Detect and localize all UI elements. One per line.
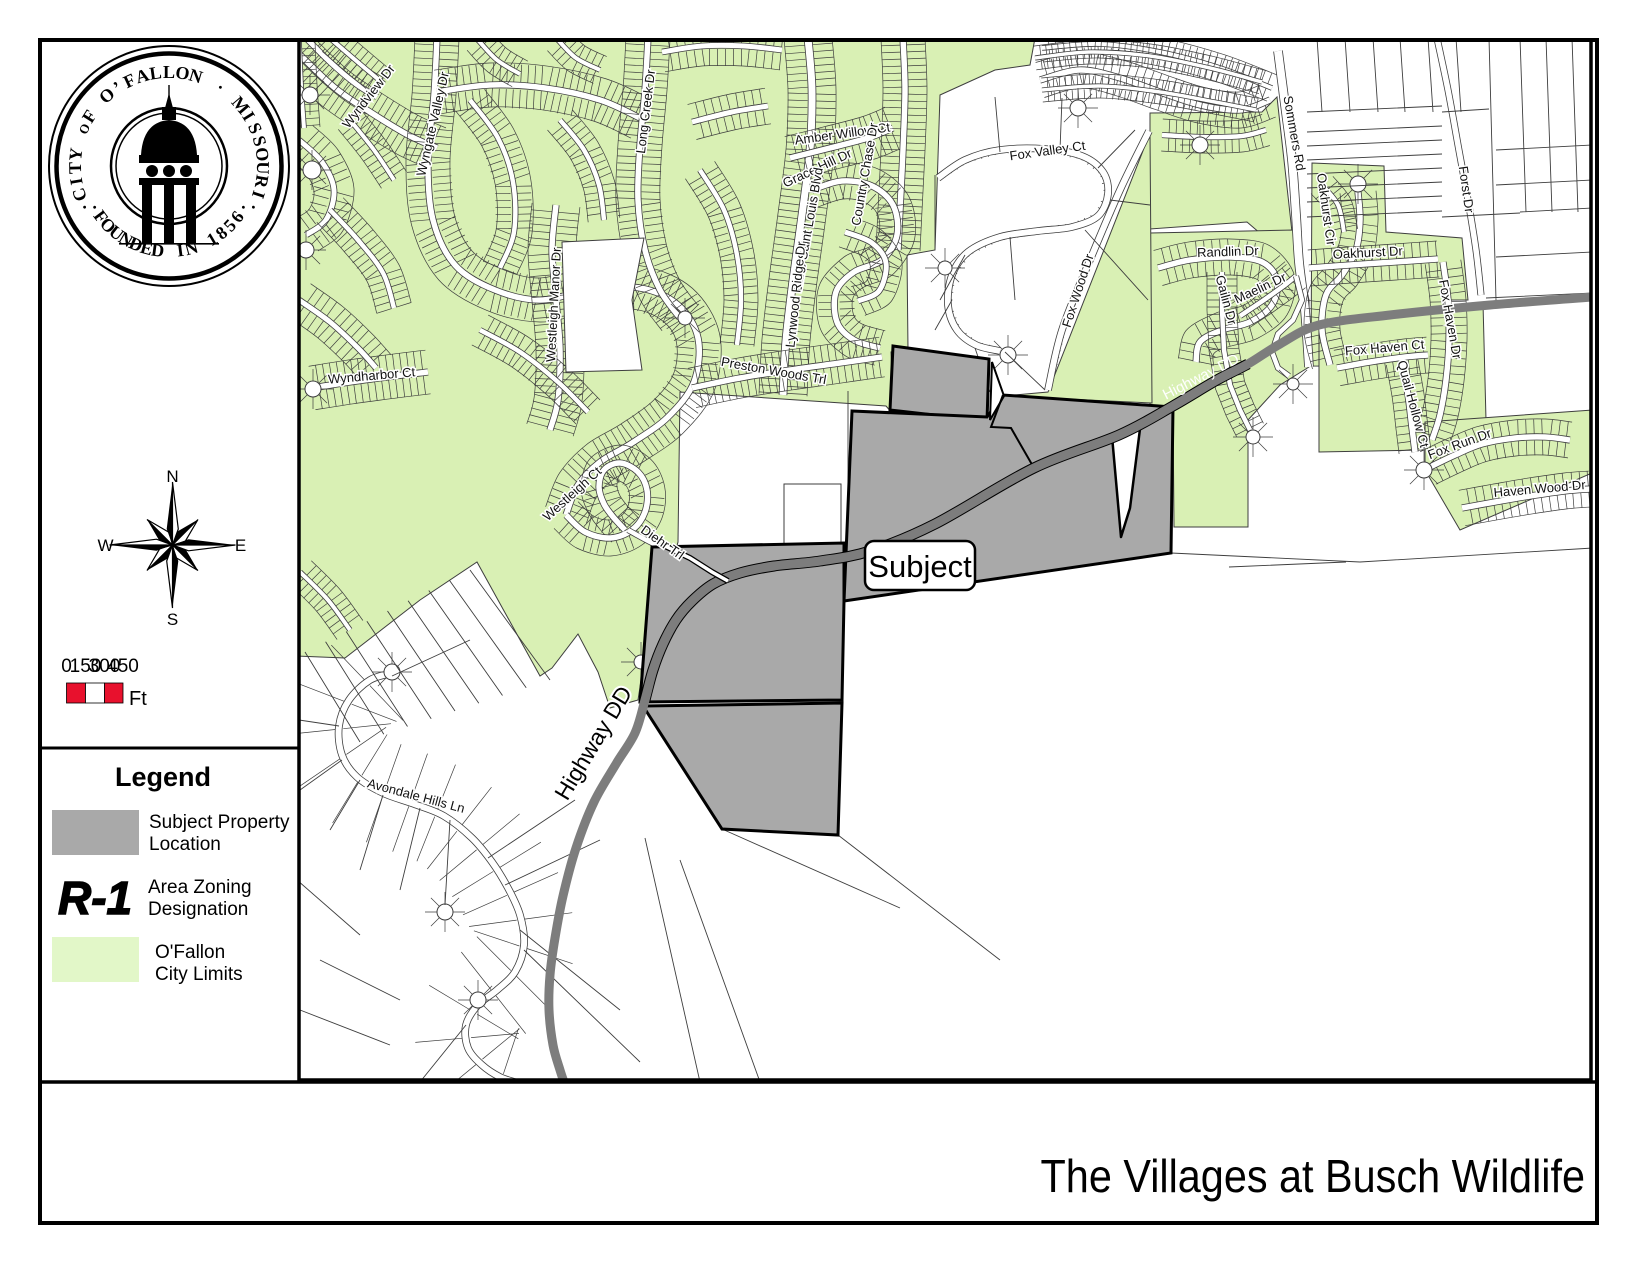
svg-text:Designation: Designation <box>148 899 248 920</box>
svg-text:N: N <box>166 467 178 486</box>
svg-text:R-1: R-1 <box>58 872 132 924</box>
svg-text:City Limits: City Limits <box>155 964 243 985</box>
svg-text:Legend: Legend <box>115 762 211 792</box>
svg-text:450: 450 <box>107 656 139 677</box>
svg-text:L: L <box>163 62 175 82</box>
svg-text:Area Zoning: Area Zoning <box>148 877 252 898</box>
svg-text:Location: Location <box>149 834 221 855</box>
svg-text:D: D <box>150 239 166 261</box>
svg-text:E: E <box>235 536 246 555</box>
svg-text:Y: Y <box>65 147 86 162</box>
svg-text:S: S <box>167 610 178 629</box>
svg-text:W: W <box>97 536 113 555</box>
svg-text:Randlin Dr: Randlin Dr <box>1197 243 1260 260</box>
svg-text:O: O <box>251 146 273 162</box>
svg-text:Ft: Ft <box>129 688 147 710</box>
svg-text:U: U <box>253 161 273 174</box>
svg-text:Subject: Subject <box>868 549 972 584</box>
svg-text:T: T <box>65 162 85 174</box>
svg-text:Subject Property: Subject Property <box>149 812 290 833</box>
svg-text:O'Fallon: O'Fallon <box>155 942 225 963</box>
svg-text:The Villages at Busch Wildlife: The Villages at Busch Wildlife <box>1041 1151 1585 1203</box>
